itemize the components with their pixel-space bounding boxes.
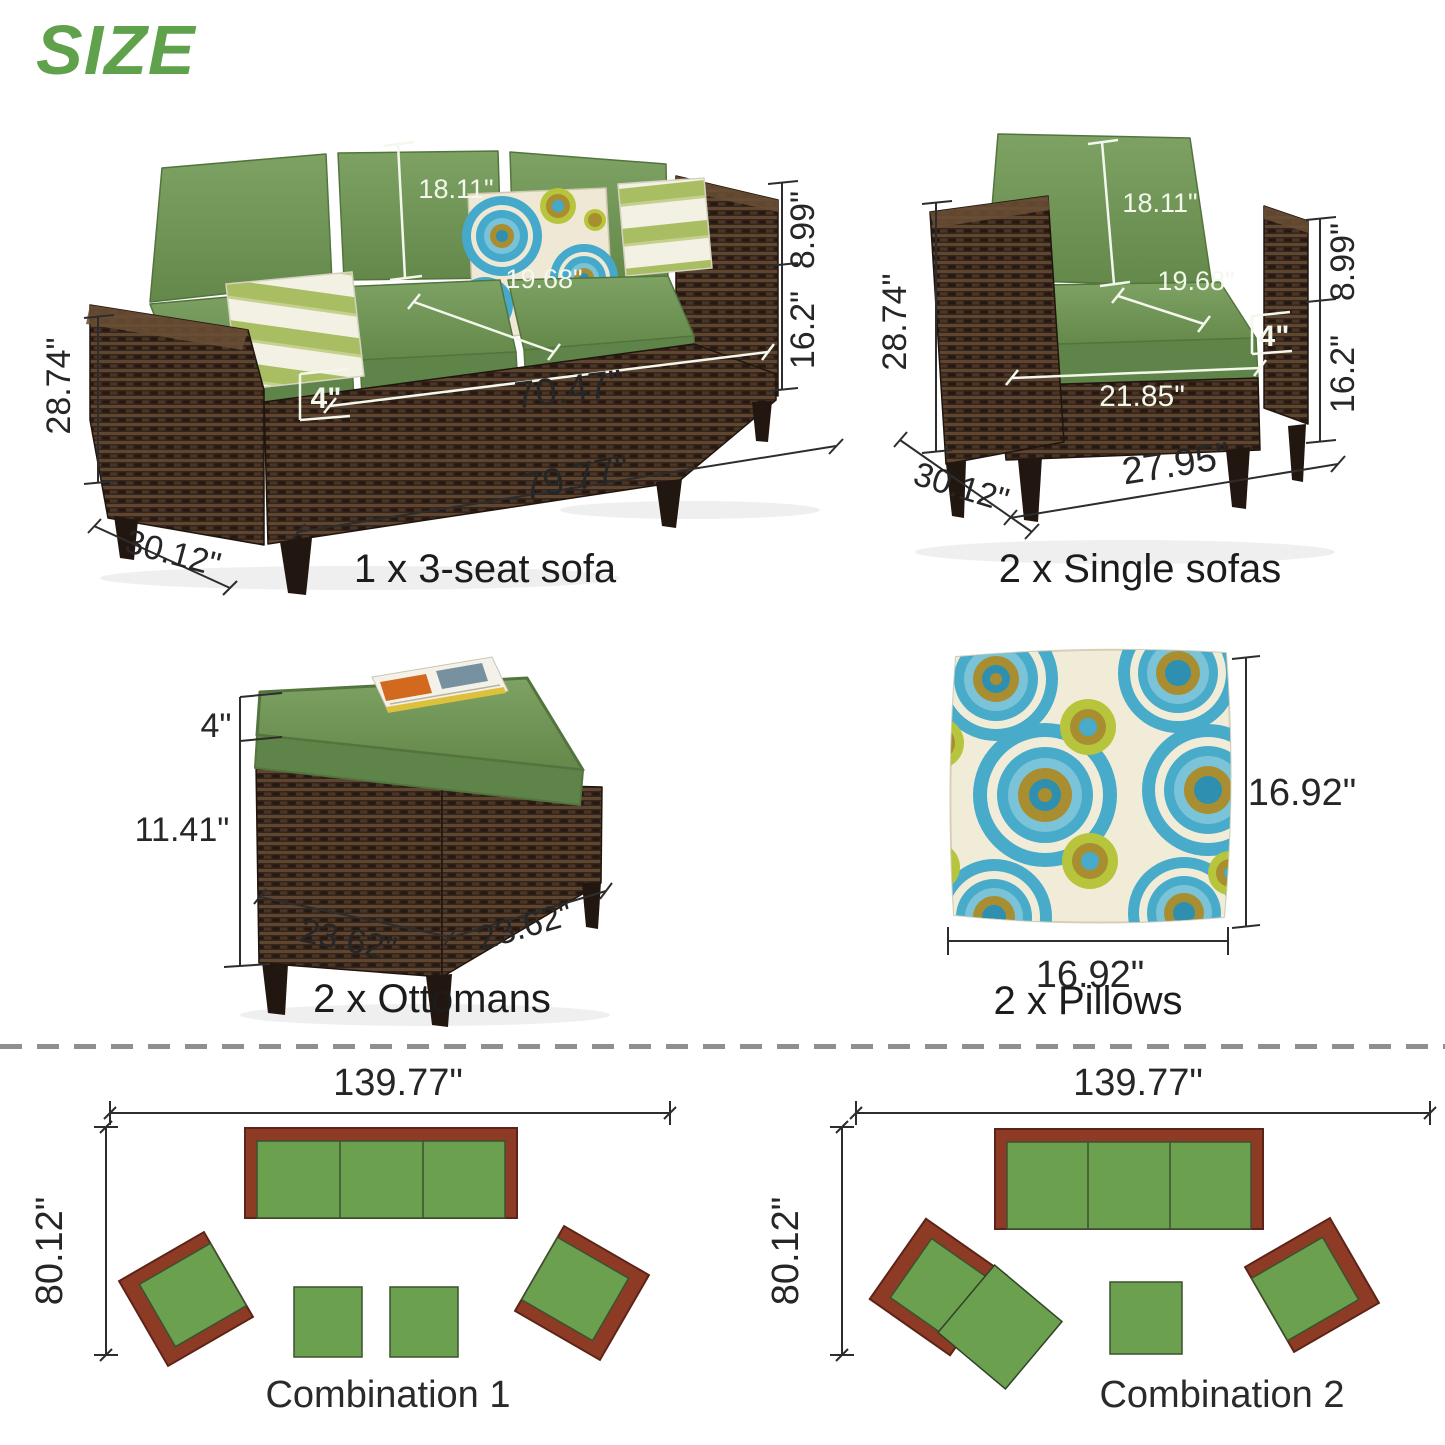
single-dim-arm-above-seat: 8.99" — [1324, 223, 1362, 301]
combo1-dim-depth: 80.12" — [29, 1197, 71, 1306]
section-divider — [0, 1044, 1445, 1049]
single-dim-seat-height: 16.2" — [1324, 335, 1362, 413]
combination1-label: Combination 1 — [265, 1374, 510, 1417]
combo1-right-chair-topview — [515, 1226, 649, 1360]
combo2-sofa-topview — [995, 1129, 1263, 1229]
combo1-ottoman1-topview — [294, 1287, 362, 1357]
sofa3-figure: 18.11" 19.68" 4" 70.47" 79.77" 8.99" 16.… — [30, 90, 860, 605]
combo2-ottoman-topview — [1110, 1282, 1182, 1354]
sofa3-dim-arm-above-seat: 8.99" — [784, 191, 822, 269]
ottoman-dim-base-height: 11.41" — [135, 811, 230, 849]
sofa3-caption: 1 x 3-seat sofa — [354, 547, 616, 592]
combo1-ottoman2-topview — [390, 1287, 458, 1357]
size-infographic: SIZE — [0, 0, 1445, 1445]
sofa3-shadow-right — [560, 501, 820, 519]
single-left-arm — [930, 196, 1064, 464]
single-dim-overall-height: 28.74" — [876, 273, 914, 370]
single-sofa-caption: 2 x Single sofas — [999, 547, 1281, 592]
page-title: SIZE — [36, 10, 196, 90]
single-dim-seat-depth: 19.68" — [1157, 266, 1234, 296]
combination2-label: Combination 2 — [1099, 1374, 1344, 1417]
combo2-right-chair-topview — [1245, 1218, 1379, 1352]
sofa3-dim-back-height: 18.11" — [418, 174, 493, 204]
sofa3-dim-overall-height: 28.74" — [40, 337, 78, 434]
combo1-dim-width: 139.77" — [333, 1062, 463, 1104]
single-dim-seat-width: 21.85" — [1099, 380, 1185, 413]
ottoman-caption: 2 x Ottomans — [313, 977, 551, 1022]
ottoman-dim-cushion-thickness: 4" — [201, 707, 232, 745]
single-sofa-figure: 28.74" 18.11" 19.68" 4" 8.99" 16.2" 21.8… — [860, 90, 1420, 605]
sofa3-dim-seat-height: 16.2" — [784, 291, 822, 369]
pillow-dim-height: 16.92" — [1248, 772, 1357, 814]
pillow-caption: 2 x Pillows — [994, 979, 1183, 1024]
combo2-dim-width: 139.77" — [1073, 1062, 1203, 1104]
sofa3-striped-pillow-right — [618, 178, 712, 276]
single-dim-cushion-thickness: 4" — [1259, 320, 1290, 353]
combo1-sofa-topview — [245, 1128, 517, 1218]
sofa3-left-arm — [86, 305, 264, 545]
combo2-dim-depth: 80.12" — [765, 1197, 807, 1306]
sofa3-dim-seat-depth: 19.68" — [505, 264, 582, 294]
combo1-left-chair-topview — [119, 1232, 253, 1366]
single-dim-back-height: 18.11" — [1122, 188, 1197, 218]
